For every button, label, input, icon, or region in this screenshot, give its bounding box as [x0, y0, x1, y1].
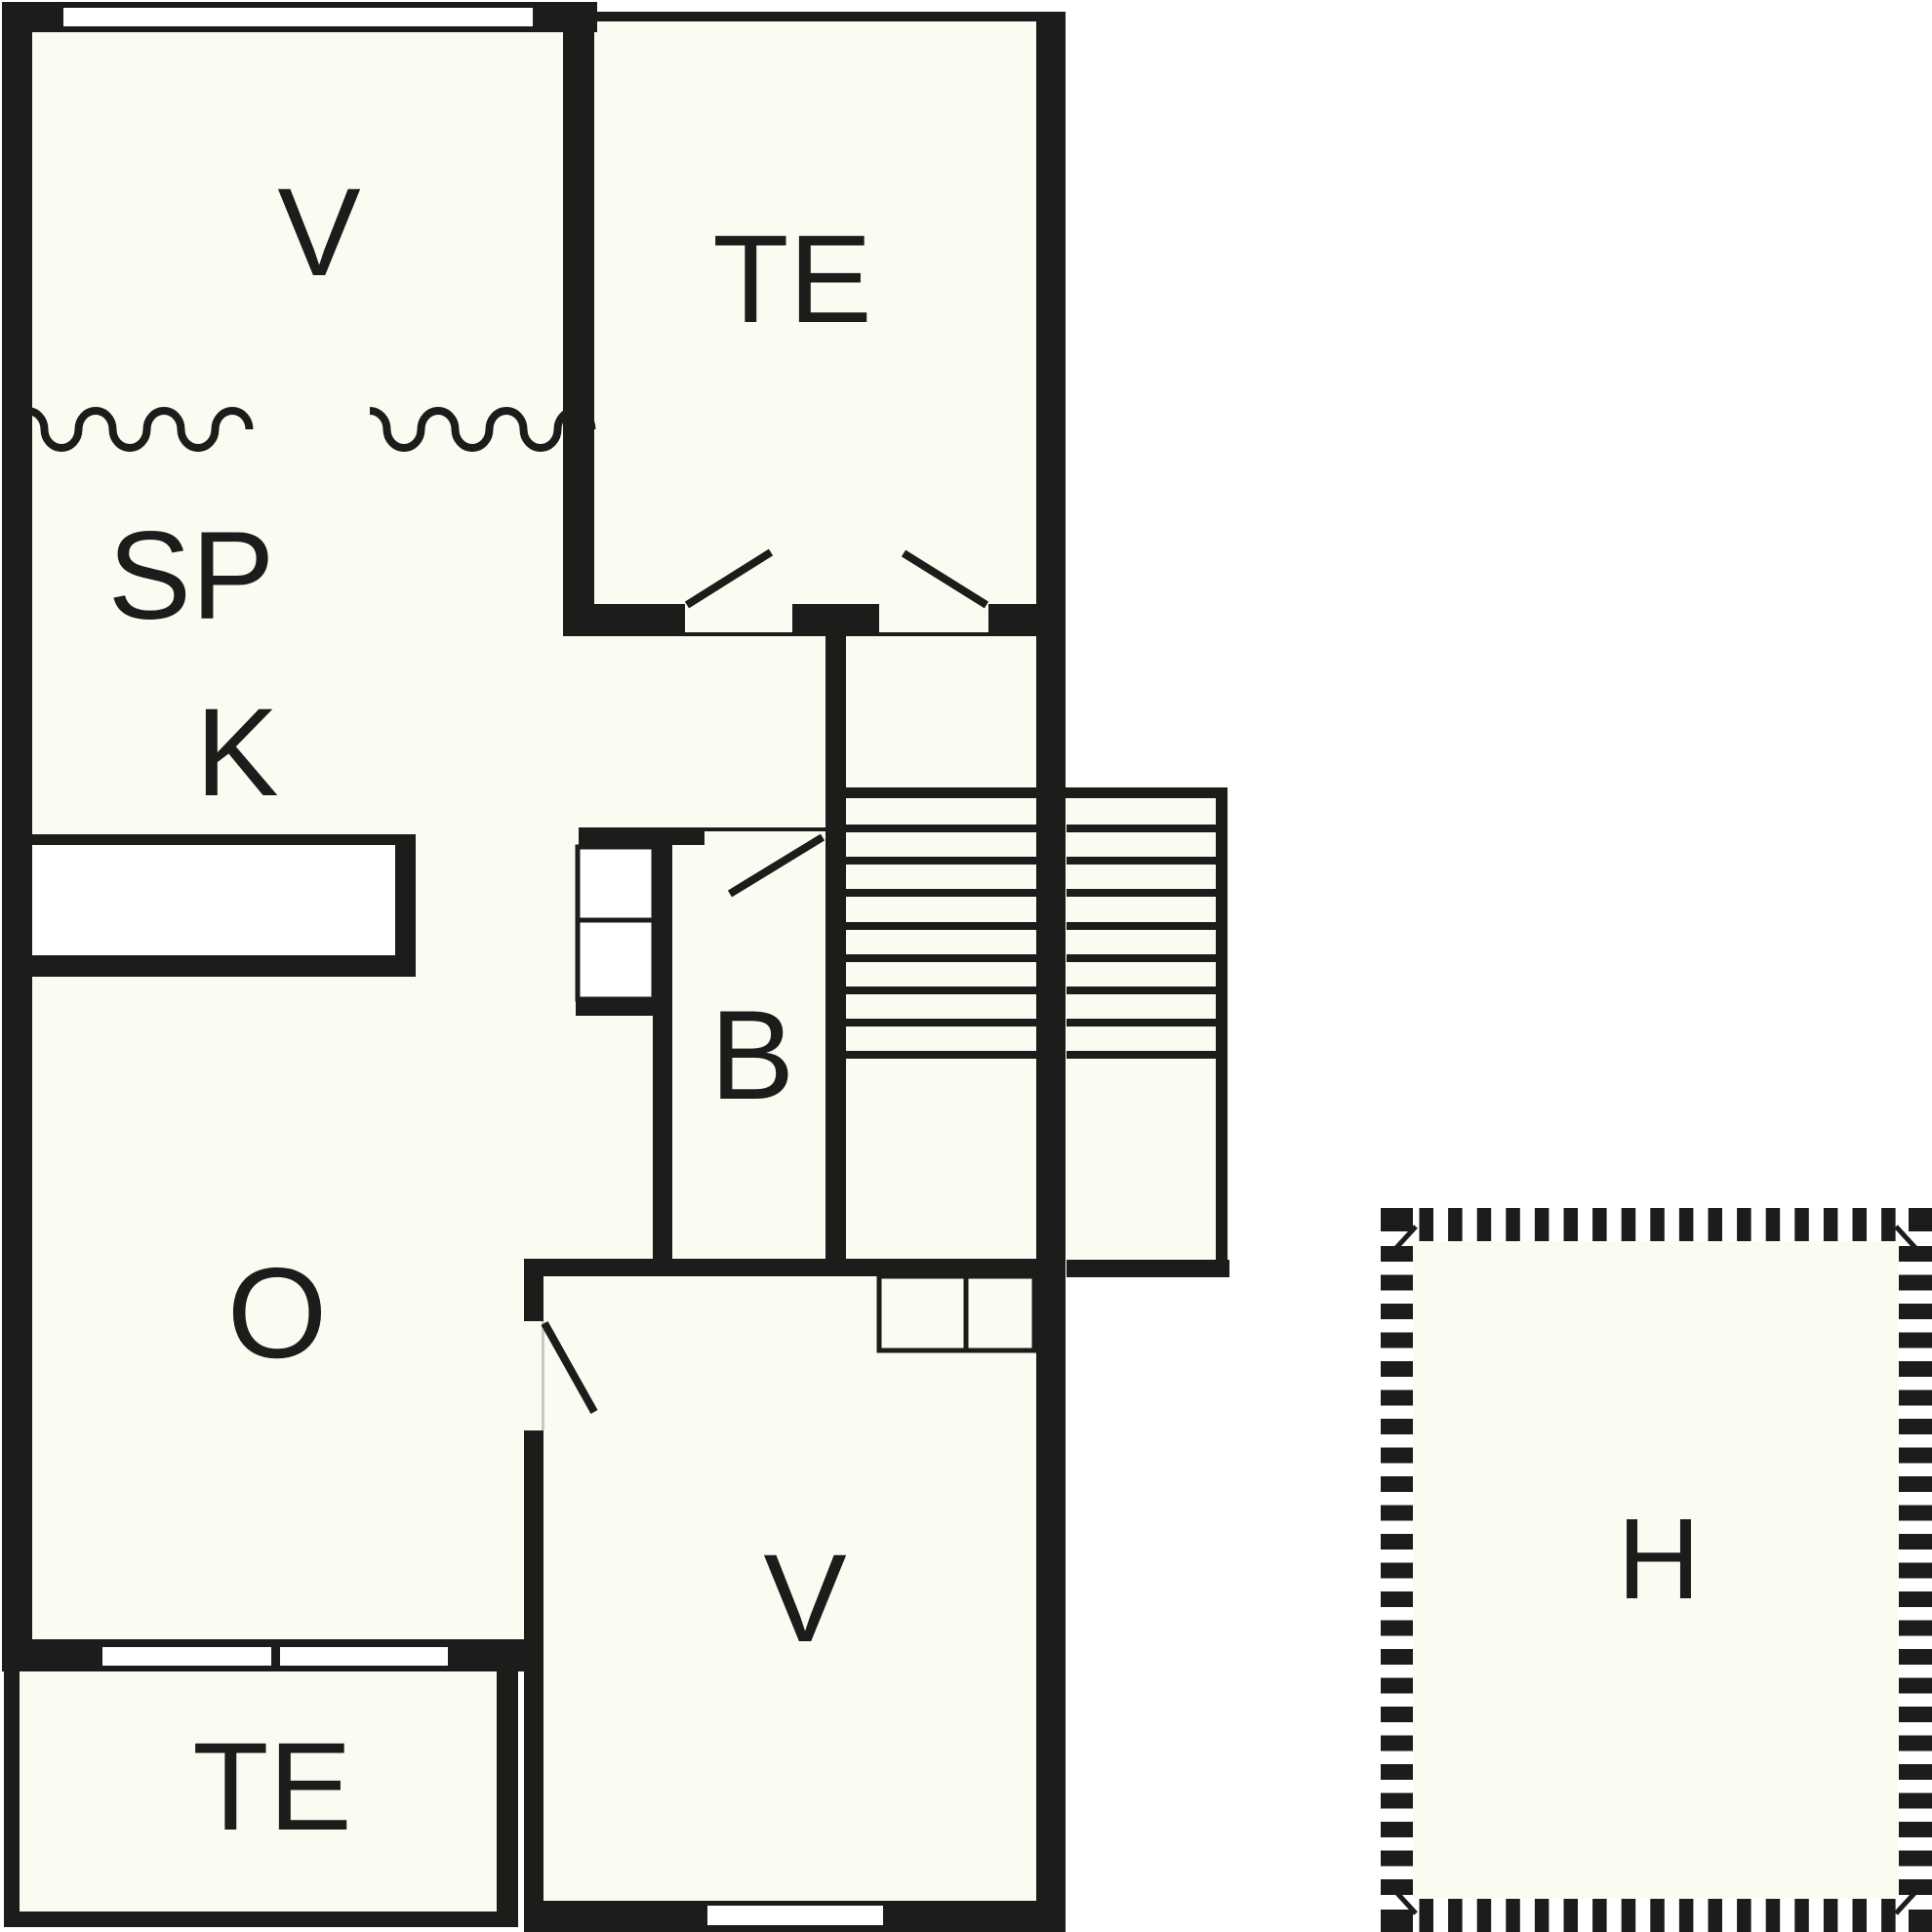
svg-text:SP: SP: [108, 506, 275, 646]
svg-text:V: V: [277, 163, 360, 302]
svg-text:TE: TE: [712, 210, 872, 349]
svg-text:TE: TE: [192, 1717, 352, 1857]
svg-text:K: K: [195, 683, 278, 823]
svg-text:B: B: [710, 984, 795, 1126]
svg-text:V: V: [763, 1529, 846, 1669]
svg-text:H: H: [1617, 1495, 1700, 1624]
svg-text:O: O: [227, 1241, 328, 1385]
